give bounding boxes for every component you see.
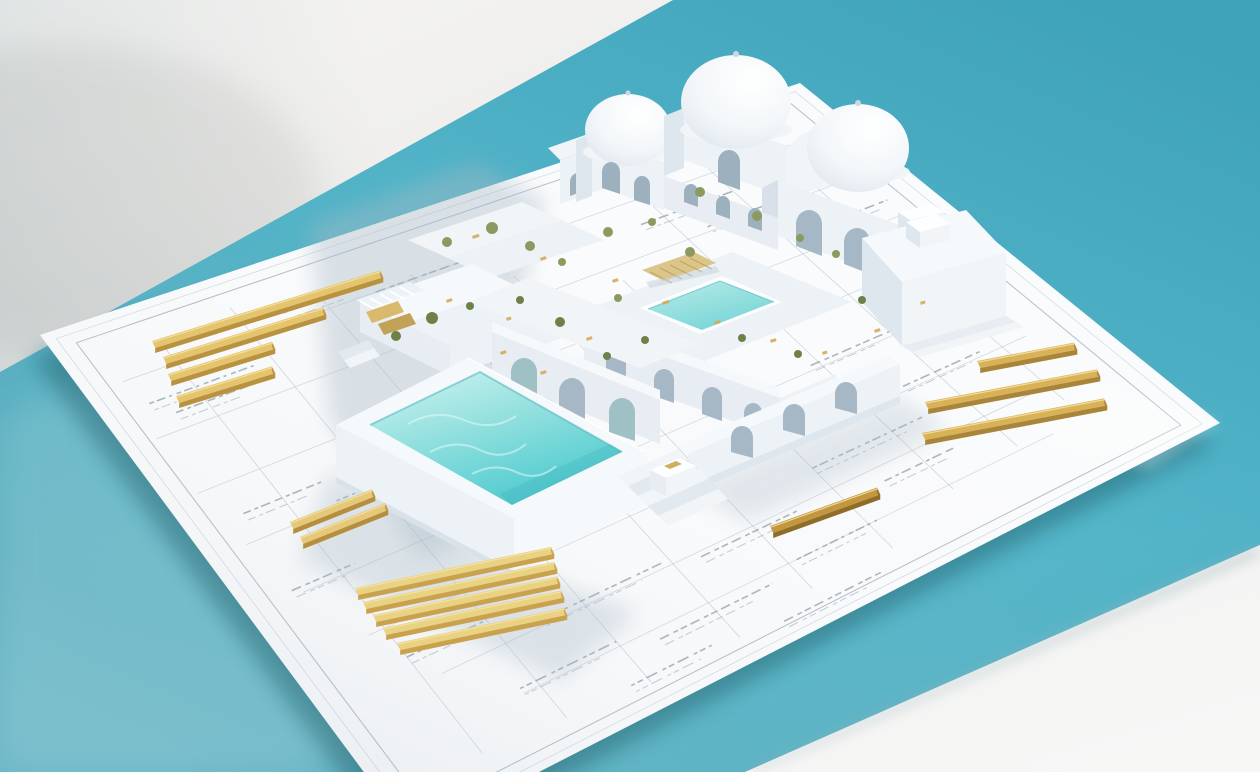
- dome-finial: [626, 91, 631, 96]
- dome-center-cupola: [681, 55, 791, 149]
- dome-left-cupola: [585, 94, 671, 166]
- dome-finial: [733, 51, 739, 57]
- dome-finial: [855, 100, 861, 106]
- dome-right-cupola: [807, 104, 909, 192]
- rendered-scene: [0, 0, 1260, 772]
